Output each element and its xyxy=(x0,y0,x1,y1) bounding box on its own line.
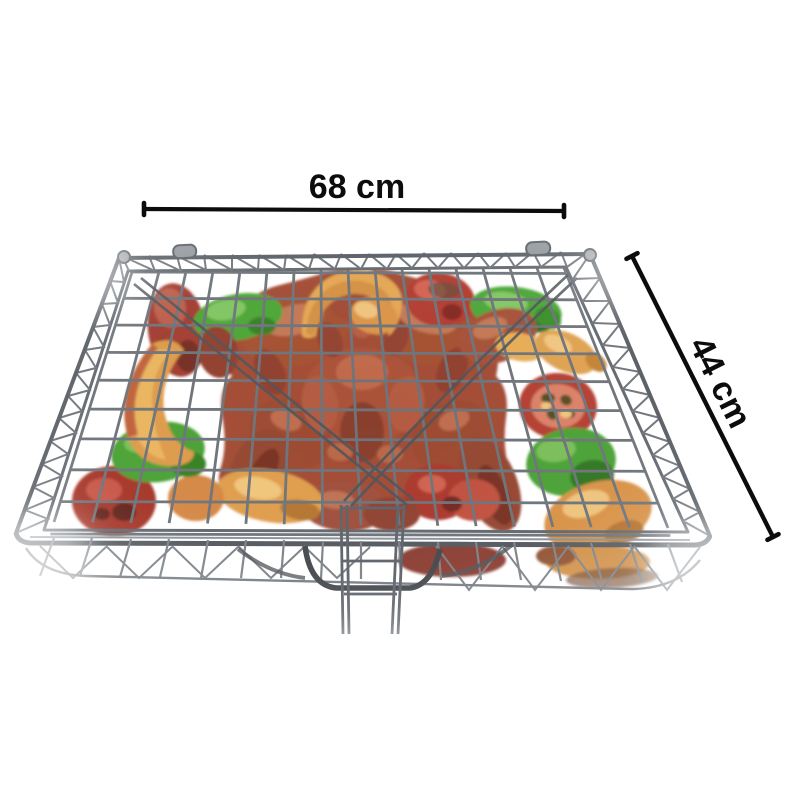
svg-text:68 cm: 68 cm xyxy=(309,168,405,206)
